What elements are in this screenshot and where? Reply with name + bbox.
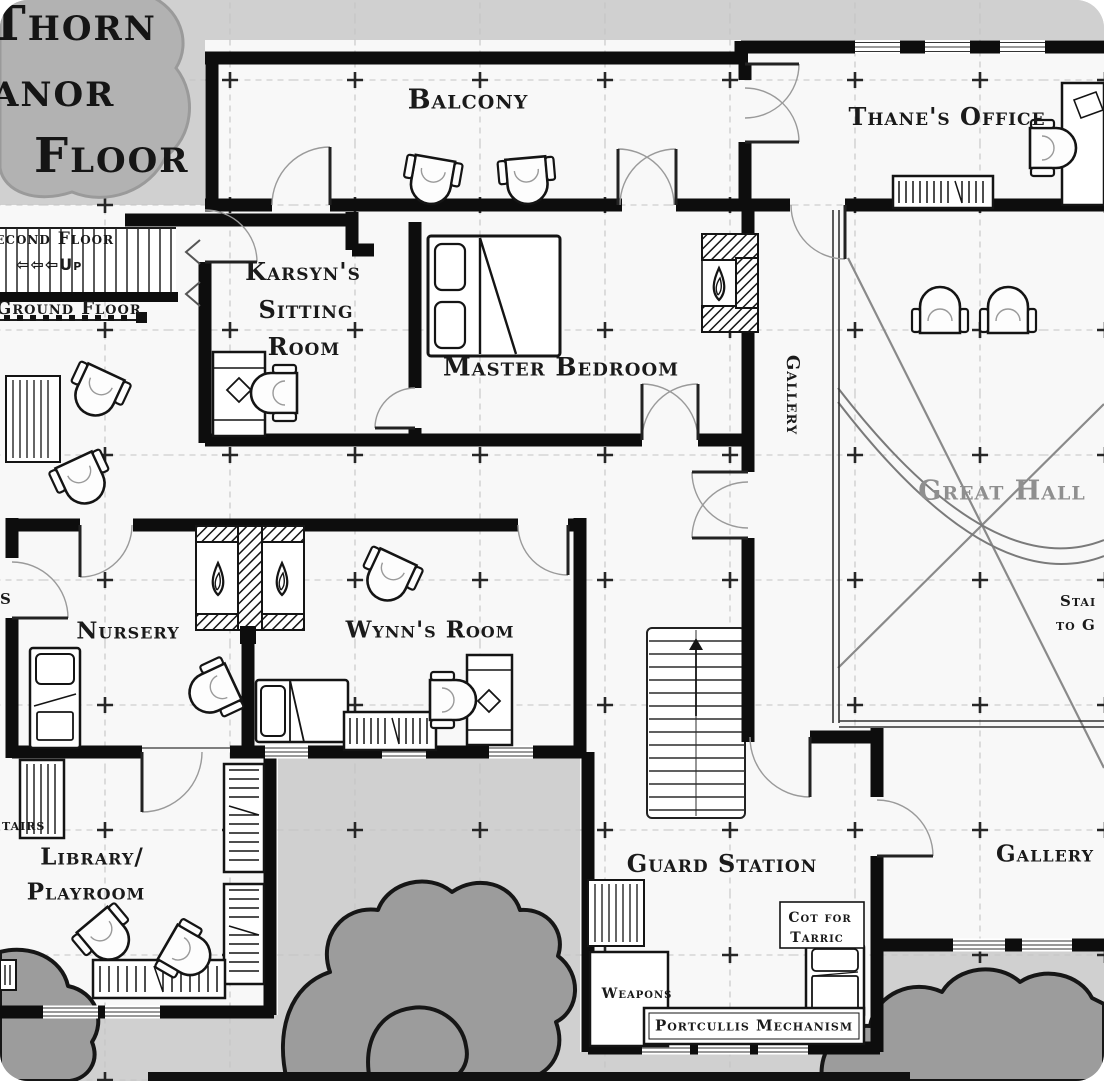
fireplace-master-bedroom [702,234,758,332]
rug-sitting-hall [6,376,60,462]
portcullis-box [644,1008,864,1044]
couch-library-top [20,760,64,838]
main-staircase [647,628,745,818]
bookshelf-thanes-office [893,176,993,208]
bookshelf-library-right-lower [224,884,264,984]
bookshelf-library-left-stub [0,960,16,990]
title-backdrop-blob [0,0,189,197]
cot-label-box [780,902,864,948]
bookshelf-library-right-upper [224,764,264,872]
floor-plan-map: Thorn anor Floor Balcony Thane's Office … [0,0,1104,1081]
weapons-rack [588,880,644,946]
fireplace-nursery-wynn [196,526,304,644]
bed-master [428,236,560,356]
floor-plan-drawing [0,0,1104,1081]
bed-nursery [30,648,80,748]
bed-wynn [256,680,348,742]
bottom-edge-wall [148,1072,910,1081]
bookshelf-wynn [344,712,436,750]
